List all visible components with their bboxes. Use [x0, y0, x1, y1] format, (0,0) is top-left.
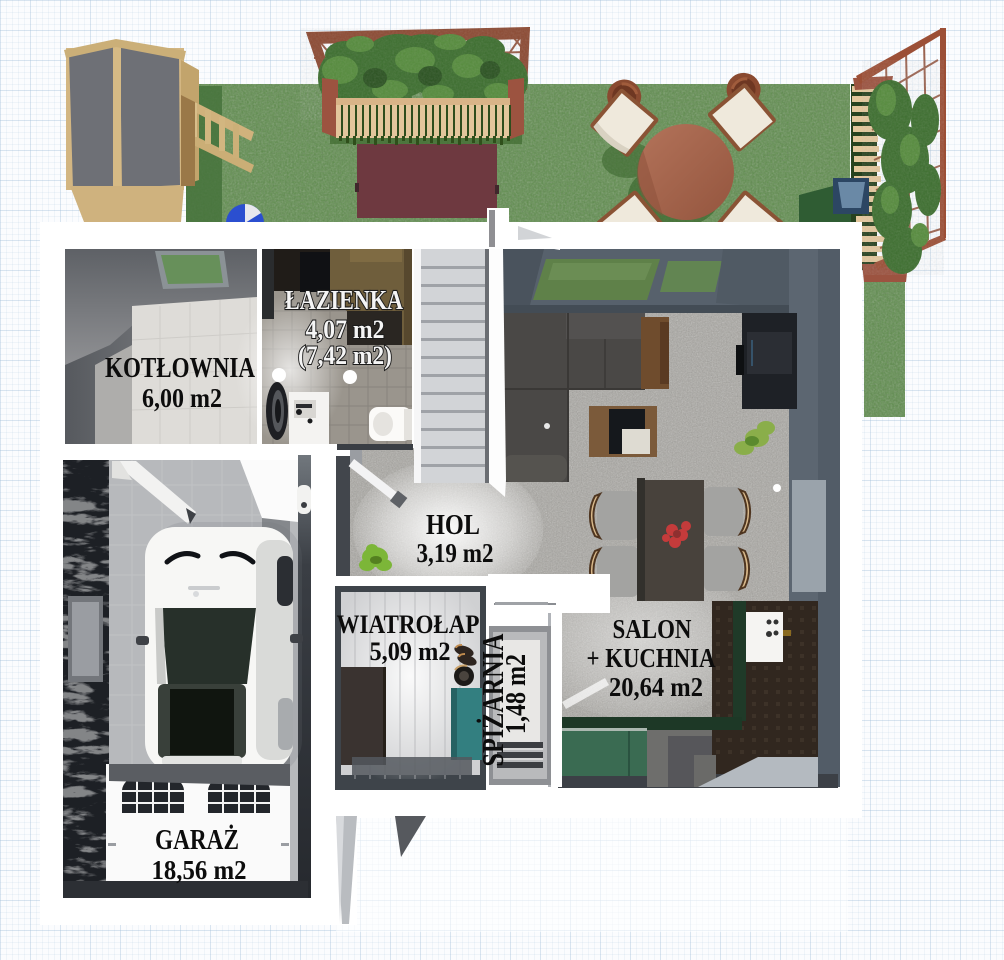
svg-text:(7,42 m2): (7,42 m2) — [298, 341, 392, 370]
svg-text:GARAŻ: GARAŻ — [155, 823, 239, 856]
svg-text:20,64 m2: 20,64 m2 — [609, 672, 703, 702]
svg-text:3,19 m2: 3,19 m2 — [417, 538, 494, 568]
svg-text:5,09 m2: 5,09 m2 — [370, 637, 451, 666]
svg-text:6,00 m2: 6,00 m2 — [142, 383, 222, 413]
svg-text:4,07 m2: 4,07 m2 — [306, 315, 385, 344]
svg-text:+ KUCHNIA: + KUCHNIA — [587, 643, 716, 673]
svg-text:SALON: SALON — [613, 614, 692, 644]
svg-text:ŁAZIENKA: ŁAZIENKA — [285, 285, 403, 315]
svg-text:KOTŁOWNIA: KOTŁOWNIA — [105, 352, 255, 384]
svg-text:HOL: HOL — [426, 509, 480, 541]
svg-text:18,56 m2: 18,56 m2 — [152, 855, 247, 885]
svg-text:1,48 m2: 1,48 m2 — [501, 654, 532, 734]
svg-text:WIATROŁAP: WIATROŁAP — [337, 610, 480, 639]
